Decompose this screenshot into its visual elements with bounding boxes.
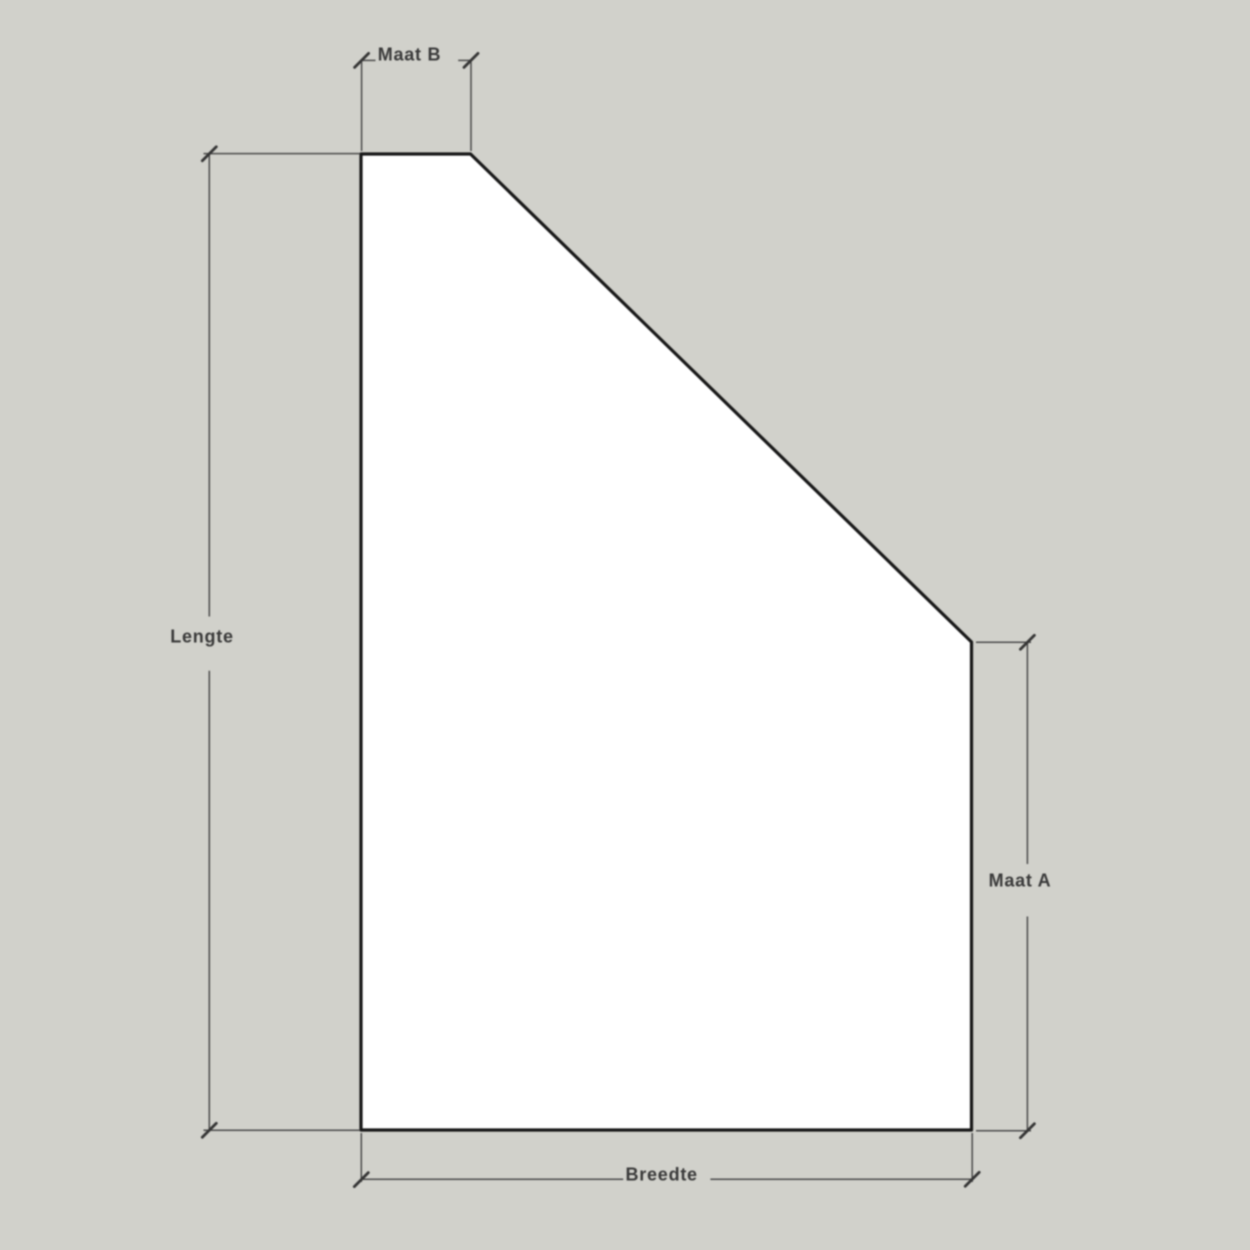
svg-text:Maat B: Maat B xyxy=(378,44,442,64)
svg-text:Maat A: Maat A xyxy=(989,871,1052,891)
svg-text:Breedte: Breedte xyxy=(626,1165,698,1185)
svg-text:Lengte: Lengte xyxy=(170,627,234,647)
